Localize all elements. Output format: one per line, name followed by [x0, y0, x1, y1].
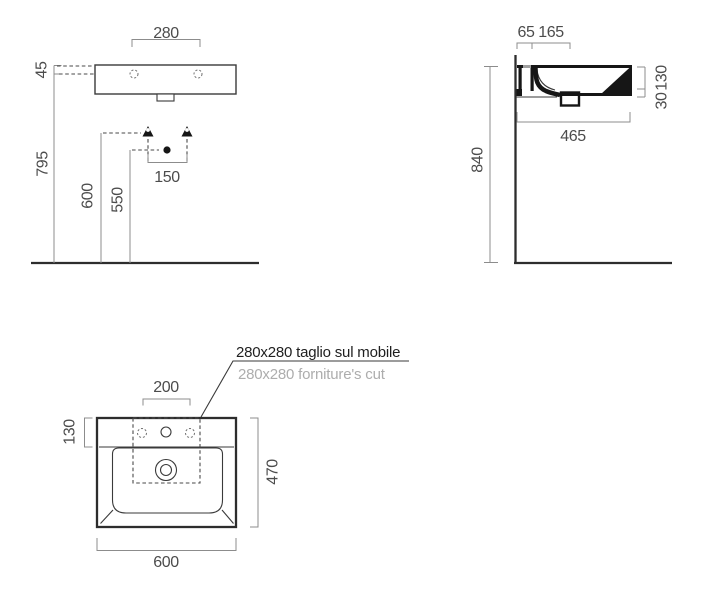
washbasin-dimension-drawing: 280 45 795 600 550 150 65: [0, 0, 705, 600]
cut-note-primary: 280x280 taglio sul mobile: [236, 344, 400, 361]
dim-label-600-plan: 600: [153, 554, 179, 571]
dim-label-465: 465: [560, 128, 586, 145]
dim-label-470: 470: [265, 459, 282, 485]
technical-drawing-canvas: 280 45 795 600 550 150 65: [0, 0, 705, 600]
dim-bracket-600-plan: [97, 538, 236, 551]
dim-label-600-front: 600: [80, 183, 97, 209]
side-view: 65 165 130 30 840 465: [470, 24, 673, 263]
dim-bracket-200: [143, 399, 190, 406]
deck-section-bar-right: [531, 68, 534, 91]
dim-label-550: 550: [110, 187, 127, 213]
dim-bracket-150: [148, 154, 187, 163]
dim-label-130-side: 130: [654, 65, 671, 91]
trap-pipe: [536, 68, 561, 95]
dim-label-200: 200: [153, 379, 179, 396]
dim-label-795: 795: [35, 151, 52, 177]
dim-label-130-plan: 130: [62, 419, 79, 445]
dim-label-150: 150: [154, 169, 180, 186]
connection-symbol-right-dot: [185, 128, 189, 132]
dim-label-165: 165: [538, 24, 564, 41]
deck-section-bar-left: [519, 68, 522, 91]
deck-foot-block: [517, 89, 523, 96]
drain-connection-symbol: [163, 146, 170, 153]
dim-bracket-65-165: [517, 43, 570, 49]
cut-note-secondary: 280x280 forniture's cut: [238, 366, 386, 383]
tap-hole-opening: [523, 65, 531, 68]
front-view: 280 45 795 600 550 150: [31, 25, 259, 263]
dim-label-840: 840: [470, 147, 487, 173]
dim-label-30: 30: [654, 92, 671, 109]
basin-drain-stub: [157, 94, 174, 101]
dim-bracket-470: [250, 418, 258, 527]
basin-front-outline: [95, 65, 236, 94]
connection-symbol-left-dot: [146, 128, 150, 132]
dim-label-45: 45: [34, 61, 51, 78]
dim-bracket-130-plan: [85, 418, 93, 447]
dim-label-65: 65: [518, 24, 535, 41]
plan-view: 200 130 470 600 280x280 taglio sul mobil…: [62, 344, 410, 571]
basin-front-wall-section: [601, 66, 632, 95]
dim-label-280: 280: [153, 25, 179, 42]
dim-bracket-465: [517, 112, 630, 122]
